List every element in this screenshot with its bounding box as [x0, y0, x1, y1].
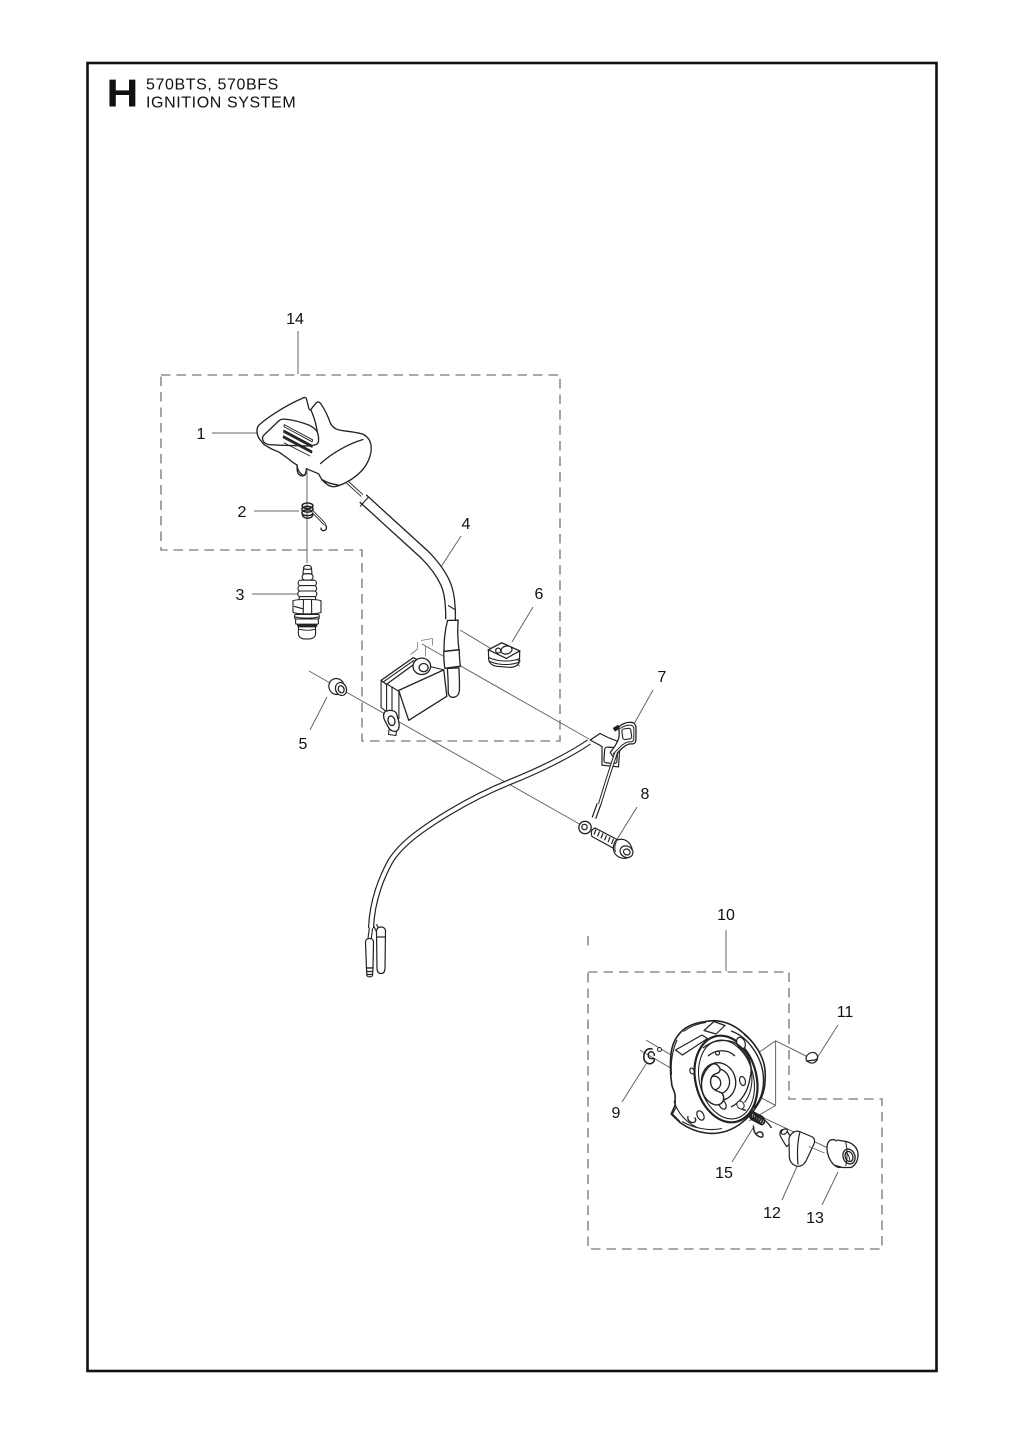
svg-text:5: 5 — [299, 736, 308, 753]
svg-text:8: 8 — [641, 786, 650, 803]
svg-text:H: H — [107, 71, 139, 115]
svg-text:15: 15 — [715, 1165, 733, 1182]
svg-text:10: 10 — [717, 907, 735, 924]
svg-text:IGNITION SYSTEM: IGNITION SYSTEM — [146, 95, 296, 112]
svg-text:13: 13 — [806, 1210, 824, 1227]
svg-text:11: 11 — [837, 1004, 854, 1021]
svg-text:9: 9 — [612, 1105, 621, 1122]
svg-text:570BTS, 570BFS: 570BTS, 570BFS — [146, 77, 279, 94]
svg-text:12: 12 — [763, 1205, 781, 1222]
svg-text:1: 1 — [197, 426, 206, 443]
svg-text:14: 14 — [286, 311, 304, 328]
svg-text:4: 4 — [462, 516, 471, 533]
svg-text:6: 6 — [535, 586, 544, 603]
svg-text:3: 3 — [236, 587, 245, 604]
svg-text:2: 2 — [238, 504, 247, 521]
svg-text:7: 7 — [658, 669, 667, 686]
